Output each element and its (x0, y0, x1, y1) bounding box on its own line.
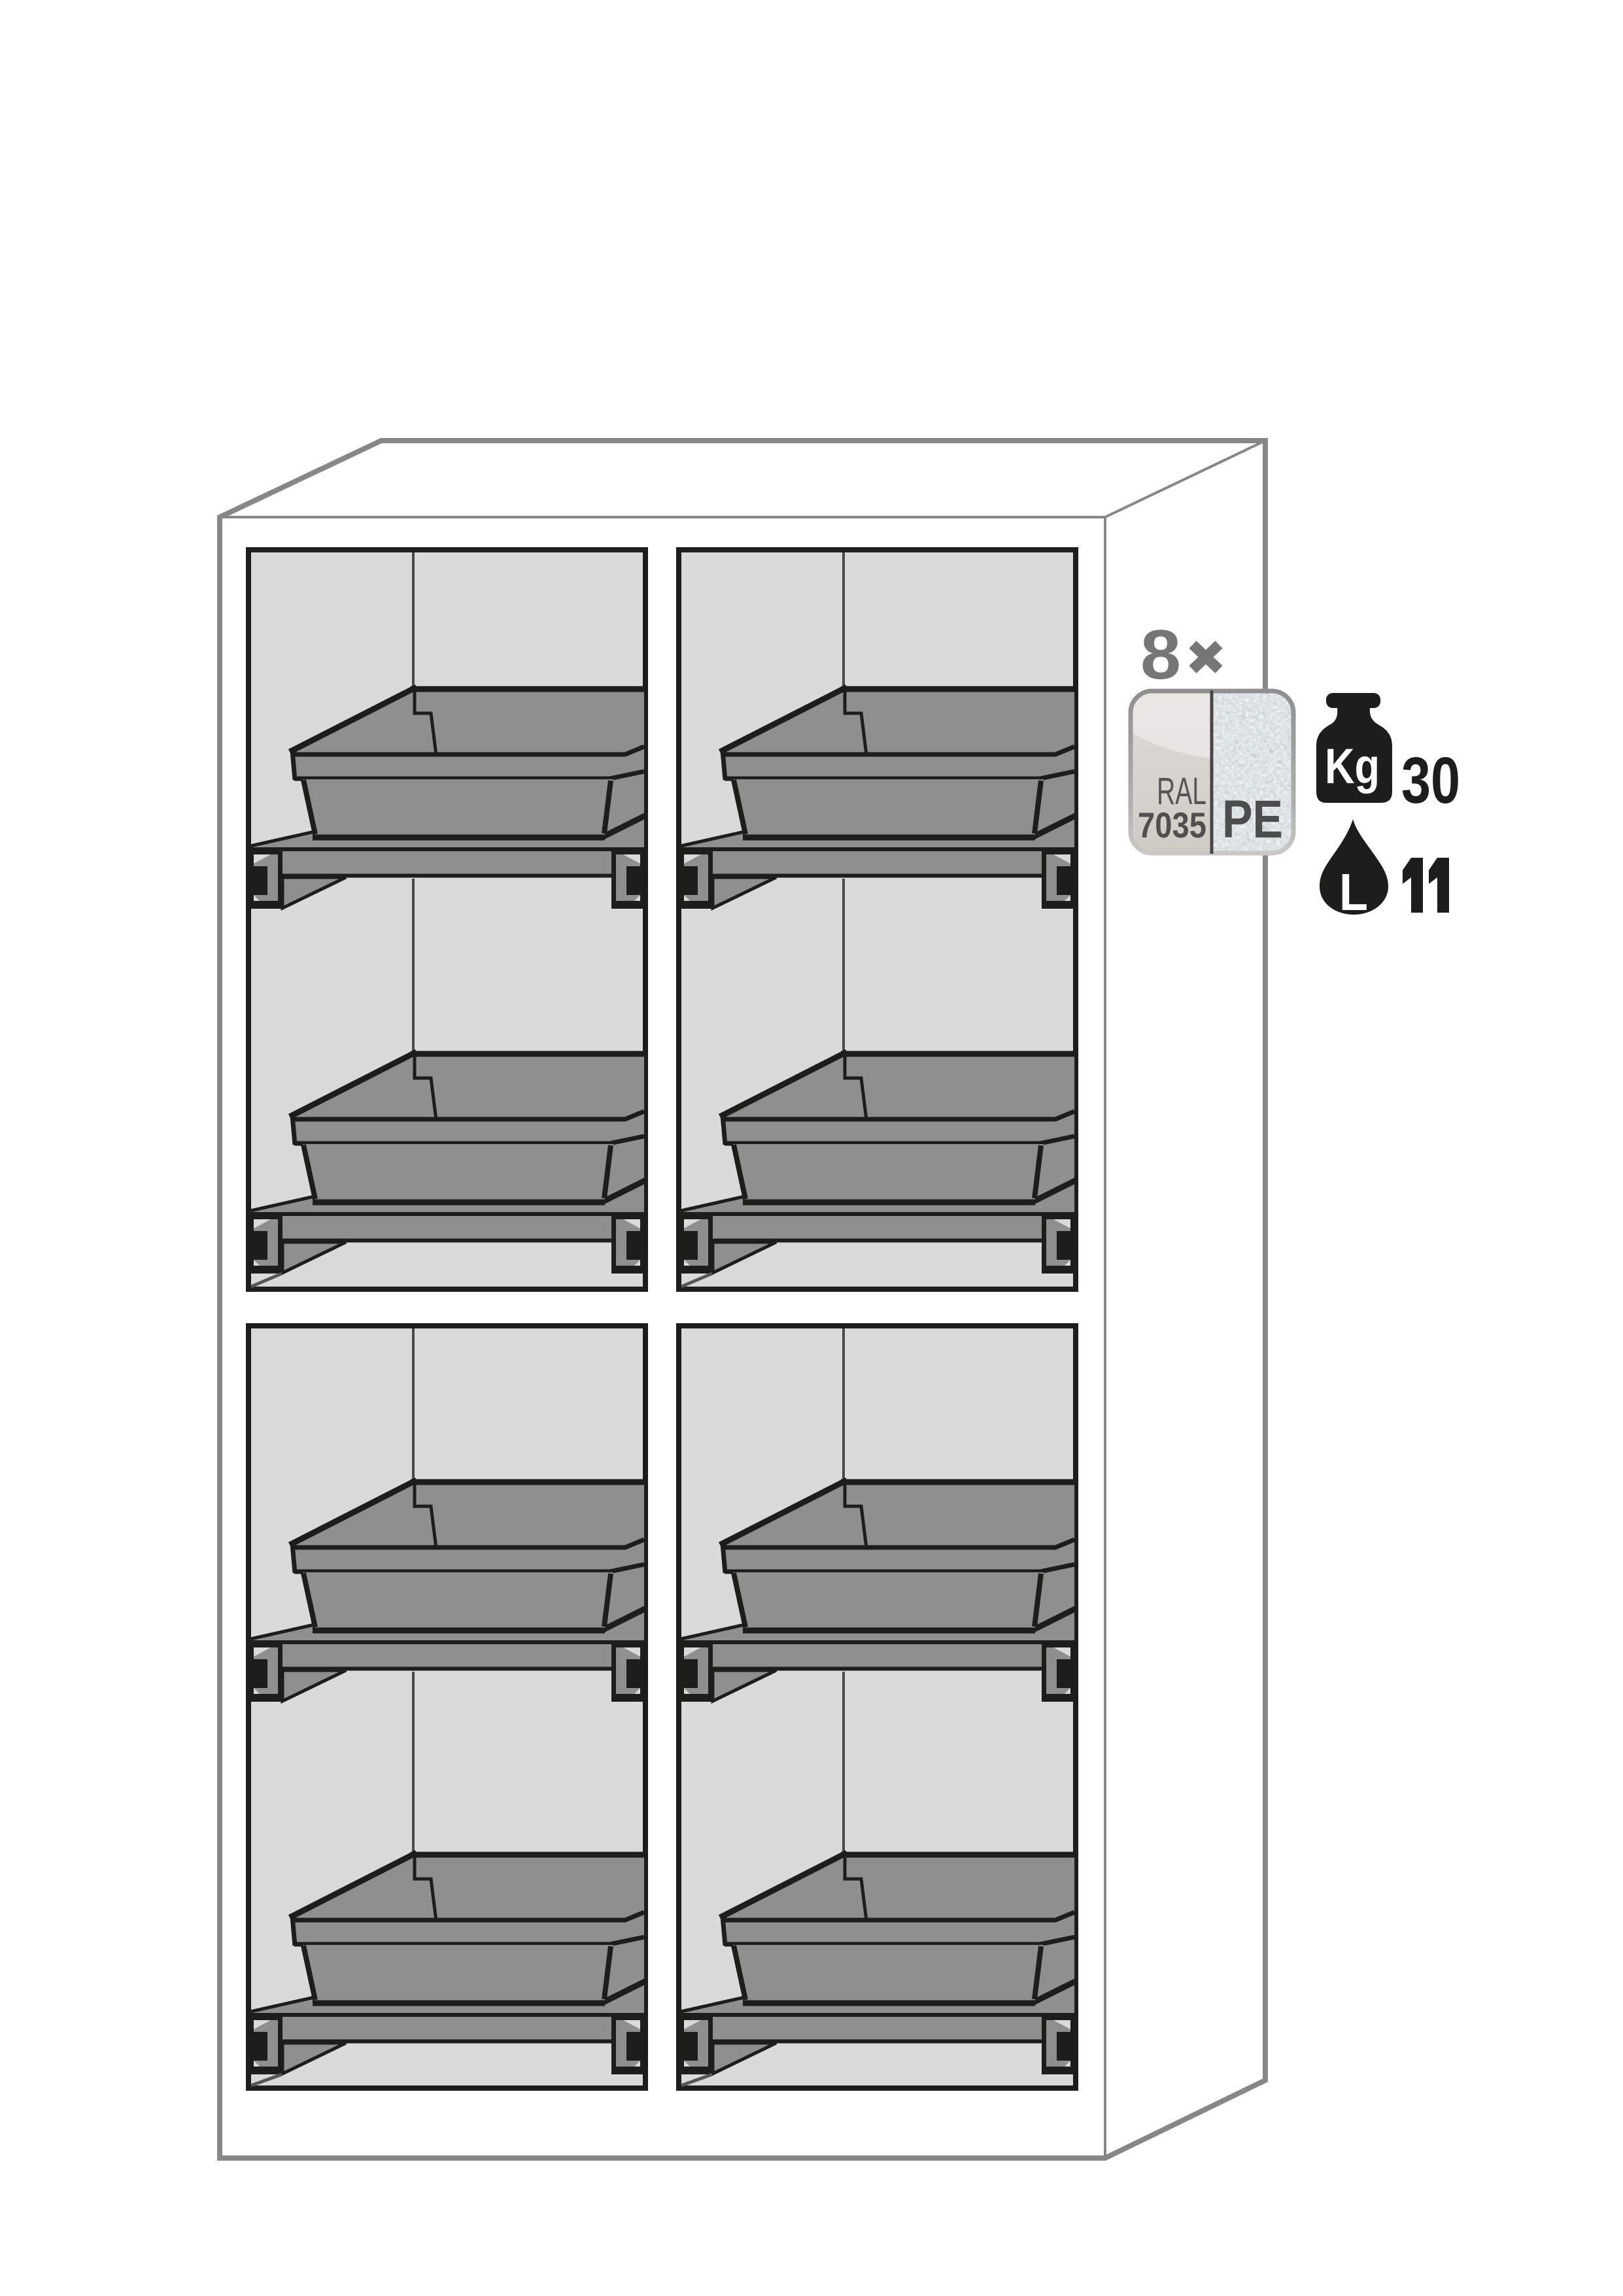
svg-text:8: 8 (1140, 615, 1181, 694)
svg-text:L: L (1339, 863, 1368, 921)
svg-text:30: 30 (1401, 744, 1460, 817)
svg-text:PE: PE (1222, 790, 1283, 849)
svg-text:Kg: Kg (1325, 739, 1380, 794)
svg-text:7035: 7035 (1138, 805, 1206, 845)
